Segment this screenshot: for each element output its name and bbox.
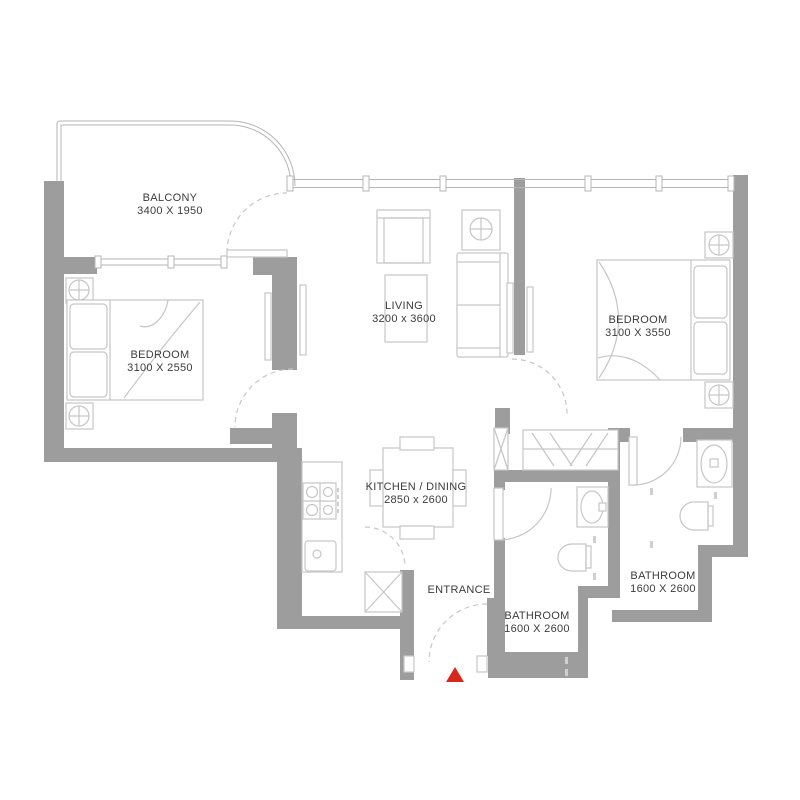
faucet [710, 459, 718, 467]
bathroom1-door-arc [499, 488, 551, 540]
balcony-outline [57, 121, 295, 186]
room-label-bathroom1: BATHROOM1600 X 2600 [504, 610, 570, 636]
balcony-door-arc [227, 193, 287, 253]
toilet [558, 544, 586, 571]
entrance-marker-icon [446, 667, 464, 682]
bathroom2-door-leaf [629, 437, 637, 485]
room-label-balcony: BALCONY3400 X 1950 [137, 192, 203, 218]
faucet [599, 503, 606, 511]
bathroom2-door-arc [633, 437, 681, 485]
tv-unit [300, 285, 306, 355]
wall-unit [527, 287, 533, 352]
bathroom2-fixtures [650, 440, 732, 548]
floor-plan-drawing [0, 0, 800, 800]
bedroom2-door-arc [512, 359, 567, 414]
kitchen-door-arc [365, 527, 405, 567]
chair [400, 437, 434, 450]
toilet [680, 502, 708, 530]
room-label-entrance: ENTRANCE [428, 584, 491, 597]
bathroom1-door-leaf [494, 488, 503, 540]
room-label-kitchen: KITCHEN / DINING2850 x 2600 [366, 481, 467, 507]
room-label-bathroom2: BATHROOM1600 X 2600 [630, 570, 696, 596]
room-label-living: LIVING3200 x 3600 [372, 300, 436, 326]
wall-unit [507, 283, 513, 353]
window-band-top [287, 176, 734, 191]
room-label-bedroom2: BEDROOM3100 X 3550 [605, 314, 671, 340]
entrance-door-frame [404, 656, 414, 672]
floor-plan: BALCONY3400 X 1950 BEDROOM3100 X 2550 LI… [0, 0, 800, 800]
entrance-door-arc [429, 604, 487, 662]
balcony-door-leaf [227, 250, 287, 257]
kitchen-fixtures [302, 462, 342, 572]
living-furniture [300, 210, 513, 357]
wall-unit [265, 293, 271, 360]
chair [400, 526, 434, 539]
wardrobe [523, 430, 618, 470]
room-label-bedroom1: BEDROOM3100 X 2550 [127, 349, 193, 375]
entrance-door-frame [477, 656, 487, 672]
window-band-bedroom1 [95, 256, 227, 268]
